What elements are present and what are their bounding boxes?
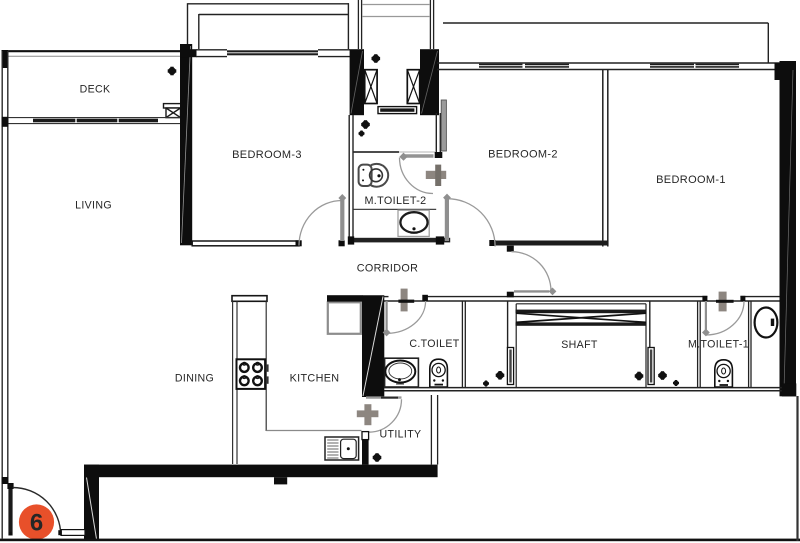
svg-text:LIVING: LIVING xyxy=(75,200,112,212)
svg-text:6: 6 xyxy=(30,510,43,537)
svg-text:DINING: DINING xyxy=(175,373,214,385)
svg-text:CORRIDOR: CORRIDOR xyxy=(357,263,419,275)
svg-text:UTILITY: UTILITY xyxy=(380,429,422,441)
svg-text:KITCHEN: KITCHEN xyxy=(290,373,340,385)
svg-text:DECK: DECK xyxy=(80,84,111,96)
svg-text:SHAFT: SHAFT xyxy=(561,339,598,351)
svg-text:C.TOILET: C.TOILET xyxy=(409,338,459,350)
svg-text:BEDROOM-1: BEDROOM-1 xyxy=(656,174,726,186)
svg-text:M.TOILET-2: M.TOILET-2 xyxy=(364,195,426,207)
svg-text:BEDROOM-3: BEDROOM-3 xyxy=(232,149,302,161)
svg-text:M.TOILET-1: M.TOILET-1 xyxy=(688,339,749,351)
svg-text:BEDROOM-2: BEDROOM-2 xyxy=(488,149,558,161)
